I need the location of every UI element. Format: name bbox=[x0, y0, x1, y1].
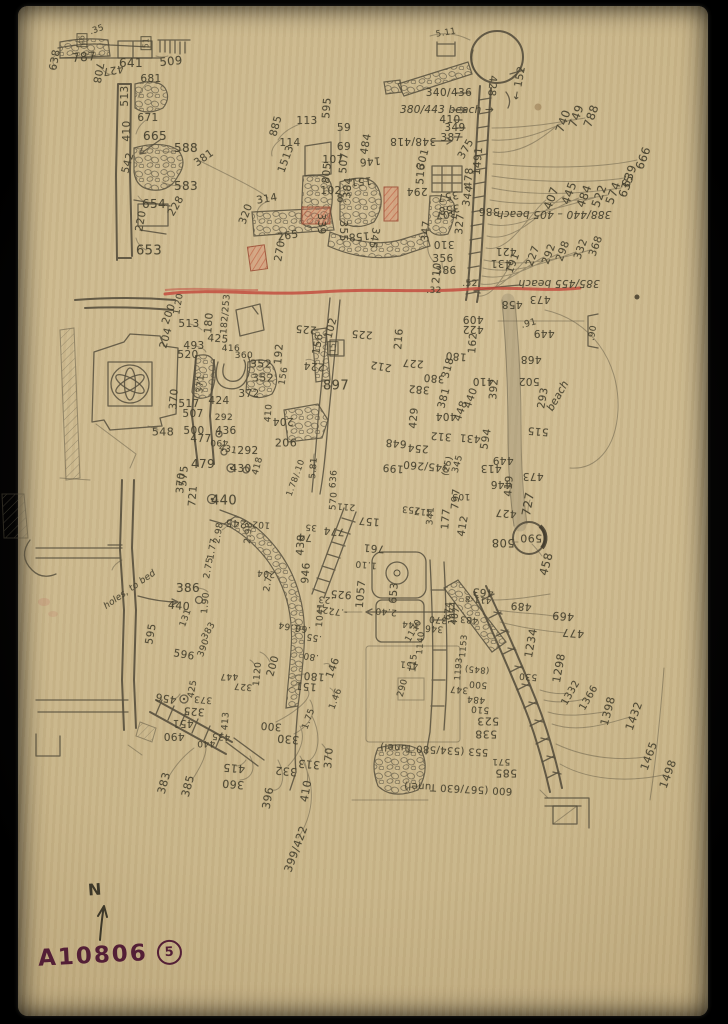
find-number-label: 431 bbox=[218, 443, 238, 456]
find-number-label: 412 bbox=[455, 514, 471, 537]
find-number-label: 490 bbox=[163, 730, 184, 742]
find-number-label: 413 bbox=[220, 711, 232, 730]
find-number-label: 653 bbox=[136, 244, 162, 259]
find-number-label: 1234 bbox=[522, 627, 540, 658]
find-number-label: 180 bbox=[202, 312, 216, 334]
find-number-label: 438 bbox=[294, 534, 308, 556]
find-number-label: 451 bbox=[172, 717, 193, 729]
find-number-label: 46 bbox=[77, 33, 88, 47]
find-number-label: 440 bbox=[211, 494, 237, 509]
find-number-label: 946 bbox=[299, 562, 313, 584]
find-number-label: 1.10 bbox=[355, 558, 377, 570]
find-number-label: 156 bbox=[277, 366, 290, 386]
find-number-label: 509 bbox=[159, 53, 183, 69]
find-number-label: 370 bbox=[322, 747, 336, 769]
find-number-label: 513 bbox=[178, 318, 199, 330]
find-number-label: 156 bbox=[310, 332, 326, 355]
find-number-label: 228 bbox=[165, 194, 186, 218]
find-number-label: 542 bbox=[119, 151, 136, 175]
find-number-label: 477 bbox=[561, 626, 584, 641]
find-number-label: 298 bbox=[554, 239, 573, 263]
tunnel-note: 553 (534/580 Tunel) bbox=[379, 741, 488, 758]
find-number-label: 451 bbox=[399, 658, 418, 670]
labels-layer: .354651638787641509708427681513671410665… bbox=[0, 0, 728, 1024]
find-number-label: 1193 bbox=[453, 657, 465, 681]
find-number-label: 200 bbox=[264, 654, 281, 678]
find-number-label: 177 bbox=[439, 508, 453, 530]
find-number-label: 1.75 bbox=[301, 707, 318, 731]
find-number-label: (845) bbox=[464, 663, 490, 675]
find-number-label: 489 bbox=[510, 599, 532, 613]
find-number-label: 479 bbox=[191, 457, 215, 471]
find-number-label: 227 bbox=[402, 356, 424, 370]
find-number-label: 665 bbox=[143, 129, 167, 143]
tunnel-note: 600 (567/630 Tunel) bbox=[403, 780, 512, 797]
find-number-label: 270 bbox=[272, 239, 288, 262]
find-number-label: 157 bbox=[358, 514, 380, 528]
find-number-label: ← 152 bbox=[510, 65, 528, 101]
find-number-label: 508 bbox=[491, 536, 514, 550]
find-number-label: 35 bbox=[305, 522, 317, 533]
find-number-label: 897 bbox=[323, 379, 349, 394]
find-number-label: 436 bbox=[215, 425, 236, 437]
find-number-label: 761 bbox=[363, 541, 385, 555]
find-number-label: 468 bbox=[520, 353, 541, 365]
find-number-label: 382 bbox=[408, 382, 430, 396]
find-number-label: 585 bbox=[495, 767, 517, 780]
find-number-label: 347 bbox=[419, 220, 433, 242]
find-number-label: 483 bbox=[459, 613, 478, 625]
find-number-label: 162 bbox=[466, 332, 480, 354]
find-number-label: 410 bbox=[263, 403, 275, 422]
find-number-label: 352 bbox=[252, 372, 274, 385]
find-number-label: 523 bbox=[477, 715, 499, 728]
find-number-label: 925 bbox=[330, 587, 352, 601]
find-number-label: 449 bbox=[492, 454, 513, 466]
find-number-label: 220 bbox=[133, 209, 149, 232]
find-number-label: 510 bbox=[470, 703, 489, 715]
find-number-label: 396 bbox=[260, 786, 277, 810]
find-number-label: 348/418 bbox=[390, 135, 436, 147]
find-number-label: 352 bbox=[250, 358, 272, 371]
find-number-label: 636 bbox=[328, 469, 340, 488]
find-number-label: 212 bbox=[369, 358, 392, 374]
find-number-label: 1041 bbox=[315, 602, 327, 627]
find-number-label: 477 bbox=[190, 433, 211, 445]
find-number-label: 588 bbox=[174, 141, 198, 155]
find-number-label: 59 bbox=[337, 122, 351, 134]
find-number-label: 2.75 bbox=[202, 556, 216, 579]
find-number-label: 571 bbox=[492, 756, 510, 766]
find-number-label: 373 bbox=[193, 693, 212, 705]
find-number-label: 210 bbox=[430, 262, 444, 284]
find-number-label: 430 bbox=[230, 463, 251, 475]
find-number-label: 1432 bbox=[623, 700, 645, 732]
find-number-label: 151 bbox=[350, 174, 372, 188]
find-number-label: 515 bbox=[527, 424, 549, 438]
find-number-label: 538 bbox=[475, 728, 497, 741]
find-number-label: 313 bbox=[297, 757, 320, 772]
find-number-label: 385 bbox=[179, 774, 197, 799]
find-number-label: 314 bbox=[255, 191, 278, 207]
find-number-label: 192 bbox=[272, 343, 286, 365]
find-number-label: 204 bbox=[272, 415, 293, 427]
find-number-label: 199 bbox=[382, 461, 404, 475]
find-number-label: 590 bbox=[520, 532, 542, 545]
find-number-label: 290 bbox=[396, 678, 410, 698]
find-number-label: 502 bbox=[518, 375, 539, 387]
find-number-label: 312 bbox=[430, 429, 452, 443]
find-number-label: 387 bbox=[440, 132, 461, 144]
find-number-label: 103 bbox=[452, 491, 470, 501]
find-number-label: 653 bbox=[387, 582, 401, 604]
find-number-label: 370 bbox=[174, 472, 188, 494]
find-number-label: 347 bbox=[449, 683, 468, 695]
find-number-label: 1120 bbox=[252, 661, 264, 686]
find-number-label: 458 bbox=[501, 298, 522, 310]
find-number-label: 449 bbox=[533, 327, 554, 339]
find-number-label: 15 bbox=[328, 341, 339, 355]
find-number-label: 427 bbox=[495, 506, 517, 520]
find-number-label: 740 bbox=[552, 108, 573, 135]
find-number-label: 507 bbox=[337, 152, 351, 174]
find-number-label: 327 bbox=[233, 680, 252, 692]
find-number-label: 1074 bbox=[447, 601, 459, 625]
find-number-label: 500 bbox=[468, 678, 487, 690]
find-number-label: 456 bbox=[154, 690, 177, 706]
find-number-label: 428 bbox=[485, 75, 499, 97]
find-number-label: 1.90 bbox=[200, 592, 212, 614]
find-number-label: .55 bbox=[305, 631, 322, 644]
find-number-label: 51 bbox=[141, 36, 152, 50]
find-number-label: 484 bbox=[358, 132, 374, 155]
sheet-number-circled: 5 bbox=[156, 939, 182, 965]
find-number-label: 507 bbox=[182, 408, 203, 420]
find-number-label: .80 bbox=[302, 650, 319, 663]
find-number-label: 595 bbox=[320, 97, 334, 119]
find-number-label: 473 bbox=[522, 470, 543, 482]
find-number-label: 410 bbox=[121, 120, 133, 141]
find-number-label: 102 bbox=[251, 518, 270, 530]
find-number-label: 146 bbox=[359, 154, 381, 168]
find-number-label: 341 bbox=[425, 506, 437, 525]
handwritten-note: holes, to bed bbox=[102, 568, 158, 611]
find-number-label: .32 bbox=[426, 286, 442, 296]
find-number-label: 225 bbox=[351, 327, 373, 341]
find-number-label: 292 bbox=[215, 413, 233, 423]
find-number-label: 473 bbox=[529, 293, 550, 305]
find-number-label: 721 bbox=[186, 485, 200, 507]
find-number-label: 424 bbox=[208, 395, 229, 407]
find-number-label: 1.46 bbox=[328, 687, 345, 711]
find-number-label: 339 bbox=[315, 213, 327, 234]
find-number-label: 1366 bbox=[577, 684, 600, 713]
find-number-label: 681 bbox=[140, 73, 161, 85]
find-number-label: -.72 bbox=[328, 605, 348, 617]
find-number-label: 411-8 bbox=[464, 593, 491, 605]
find-number-label: 530 bbox=[518, 670, 537, 682]
find-number-label: 340/436 bbox=[426, 87, 472, 99]
find-number-label: 381 bbox=[435, 386, 452, 410]
find-number-label: .35 bbox=[88, 23, 105, 37]
find-number-label: 418 bbox=[251, 456, 265, 476]
find-number-label: 5.11 bbox=[435, 26, 457, 39]
find-number-label: 1465 bbox=[638, 740, 660, 772]
find-number-label: 320 bbox=[237, 202, 256, 226]
find-number-label: 1.78/.10 bbox=[285, 458, 308, 498]
find-number-label: 399/422 bbox=[282, 824, 311, 874]
find-number-label: 1498 bbox=[657, 758, 679, 790]
find-number-label: 360 bbox=[221, 777, 244, 792]
find-number-label: 113 bbox=[296, 115, 317, 127]
find-number-label: 345 bbox=[366, 226, 382, 249]
find-number-label: 146 bbox=[324, 656, 343, 680]
find-number-label: 410 bbox=[472, 375, 493, 387]
find-number-label: 325 bbox=[183, 704, 205, 718]
find-number-label: 431 bbox=[459, 431, 481, 445]
find-number-label: 5.81 bbox=[308, 457, 320, 479]
photographed-sheet: .354651638787641509708427681513671410665… bbox=[0, 0, 728, 1024]
find-number-label: 410 bbox=[298, 779, 315, 803]
north-label: N bbox=[87, 880, 102, 900]
find-number-label: 294 bbox=[406, 185, 427, 197]
find-number-label: 458 bbox=[536, 551, 556, 577]
find-number-label: 346 bbox=[424, 622, 443, 634]
find-number-label: 1398 bbox=[598, 695, 618, 727]
find-number-label: 654 bbox=[142, 197, 166, 211]
find-number-label: 227 bbox=[524, 244, 543, 268]
find-number-label: 330 bbox=[276, 732, 299, 747]
find-number-label: 372 bbox=[238, 388, 259, 400]
find-number-label: 885 bbox=[267, 114, 284, 138]
find-number-label: 774 bbox=[323, 524, 345, 538]
find-number-label: 727 bbox=[519, 491, 537, 517]
find-number-label: 513 bbox=[119, 85, 131, 106]
find-number-label: 429 bbox=[407, 407, 421, 429]
find-number-label: 548 bbox=[152, 426, 174, 439]
find-number-label: 469 bbox=[551, 609, 574, 624]
find-number-label: 2.77 bbox=[262, 569, 276, 592]
find-number-label: 594 bbox=[478, 427, 494, 450]
find-number-label: 8. bbox=[337, 193, 348, 205]
find-number-label: 368 bbox=[587, 234, 606, 258]
find-number-label: 595 bbox=[143, 622, 159, 645]
find-number-label: 386 bbox=[176, 581, 200, 595]
find-number-label: .90 bbox=[587, 324, 600, 341]
find-number-label: 404 bbox=[435, 410, 456, 422]
find-number-label: 427 bbox=[101, 62, 124, 78]
find-number-label: 421 bbox=[495, 245, 516, 257]
find-number-label: 310 bbox=[433, 238, 454, 250]
find-number-label: 516 bbox=[414, 163, 428, 185]
find-number-label: 151 bbox=[295, 679, 317, 693]
find-number-label: 383 bbox=[155, 771, 173, 796]
find-number-label: 520 bbox=[177, 349, 198, 361]
find-number-label: 583 bbox=[174, 179, 198, 193]
find-number-label: .52 bbox=[462, 279, 478, 289]
find-number-label: 1057 bbox=[354, 579, 368, 608]
find-number-label: 1153 bbox=[458, 634, 470, 658]
find-number-label: 211 bbox=[336, 500, 355, 512]
find-number-label: 371 bbox=[195, 374, 207, 393]
find-number-label: 648 bbox=[385, 436, 407, 450]
find-number-label: 2.40 bbox=[375, 605, 397, 617]
find-number-label: 327 bbox=[453, 213, 467, 235]
find-number-label: 435 bbox=[211, 730, 230, 742]
find-number-label: 1140 bbox=[415, 631, 427, 655]
find-number-label: 216 bbox=[392, 328, 406, 350]
find-number-label: 204 bbox=[157, 326, 174, 350]
find-number-label: 431 bbox=[490, 257, 511, 269]
find-number-label: 332 bbox=[274, 764, 297, 779]
find-number-label: 206 bbox=[275, 437, 297, 450]
beach-note: 388/440 – 405 beach bbox=[497, 208, 612, 220]
beach-note: 385/455 beach bbox=[518, 277, 600, 289]
find-number-label: 224 bbox=[303, 359, 325, 373]
find-number-label: 671 bbox=[137, 112, 158, 124]
find-number-label: 254 bbox=[407, 441, 429, 455]
find-number-label: 805 bbox=[320, 162, 334, 184]
find-number-label: 478 bbox=[462, 167, 476, 189]
find-number-label: 419 bbox=[502, 475, 516, 497]
find-number-label: 638 bbox=[47, 48, 63, 71]
find-number-label: 390 bbox=[196, 638, 212, 659]
find-number-label: 415 bbox=[222, 761, 245, 776]
find-number-label: 1298 bbox=[550, 652, 568, 683]
find-number-label: 182/253 bbox=[219, 294, 232, 335]
find-number-label: 596 bbox=[172, 647, 195, 663]
